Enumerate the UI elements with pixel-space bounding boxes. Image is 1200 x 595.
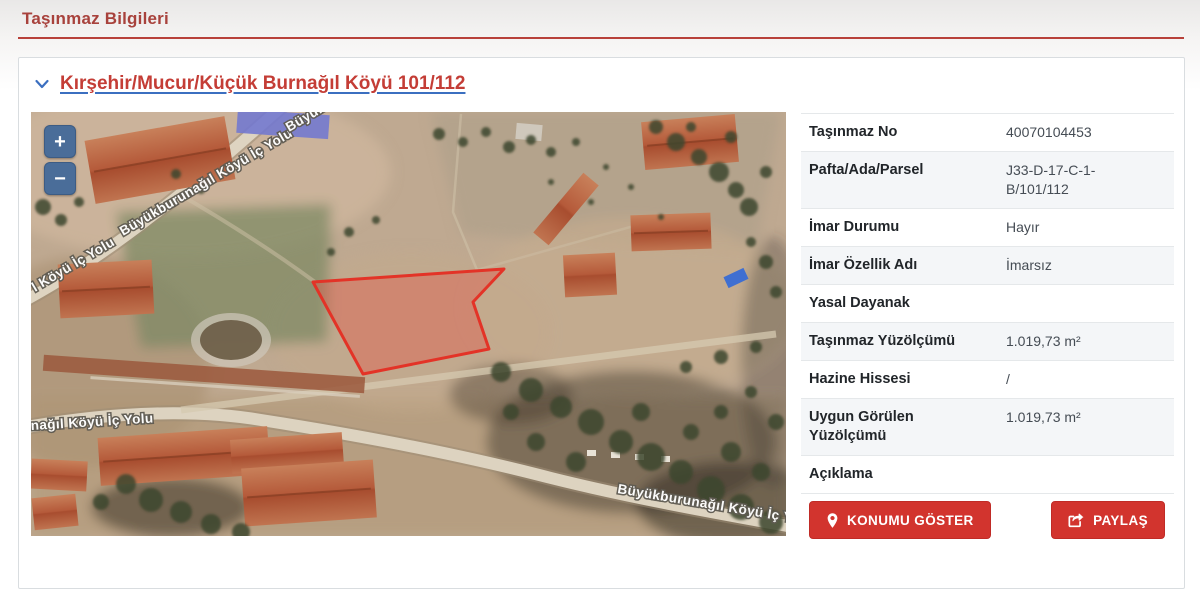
detail-value: 40070104453 bbox=[1006, 123, 1152, 142]
detail-label: Açıklama bbox=[809, 465, 984, 484]
page-header: Taşınmaz Bilgileri bbox=[0, 0, 1200, 29]
table-row: İmar Durumu Hayır bbox=[801, 209, 1174, 247]
page-title: Taşınmaz Bilgileri bbox=[22, 9, 1178, 29]
detail-label: İmar Durumu bbox=[809, 218, 984, 237]
table-row: Hazine Hissesi / bbox=[801, 361, 1174, 399]
detail-value: J33-D-17-C-1-B/101/112 bbox=[1006, 161, 1152, 199]
table-row: Yasal Dayanak bbox=[801, 285, 1174, 323]
detail-value: / bbox=[1006, 370, 1152, 389]
detail-label: Taşınmaz Yüzölçümü bbox=[809, 332, 984, 351]
property-card: Kırşehir/Mucur/Küçük Burnağıl Köyü 101/1… bbox=[18, 57, 1185, 589]
map-zoom-out-button[interactable]: − bbox=[44, 162, 76, 195]
detail-value: 1.019,73 m² bbox=[1006, 408, 1152, 427]
title-divider bbox=[18, 37, 1184, 39]
share-label: PAYLAŞ bbox=[1093, 513, 1148, 528]
map-pin-icon bbox=[826, 513, 839, 528]
map-zoom-control: + − bbox=[44, 125, 76, 199]
detail-value: 1.019,73 m² bbox=[1006, 332, 1152, 351]
card-body: l Köyü İç Yolu Büyükburunağıl Köyü İç Yo… bbox=[19, 109, 1184, 539]
detail-label: Yasal Dayanak bbox=[809, 294, 984, 313]
show-location-label: KONUMU GÖSTER bbox=[847, 513, 974, 528]
satellite-map[interactable]: l Köyü İç Yolu Büyükburunağıl Köyü İç Yo… bbox=[31, 112, 786, 536]
table-row: Taşınmaz No 40070104453 bbox=[801, 114, 1174, 152]
detail-label: Pafta/Ada/Parsel bbox=[809, 161, 984, 180]
detail-value: İmarsız bbox=[1006, 256, 1152, 275]
detail-label: İmar Özellik Adı bbox=[809, 256, 984, 275]
detail-value: Hayır bbox=[1006, 218, 1152, 237]
chevron-down-icon[interactable] bbox=[33, 75, 51, 93]
table-row: Pafta/Ada/Parsel J33-D-17-C-1-B/101/112 bbox=[801, 152, 1174, 209]
actions-row: KONUMU GÖSTER PAYLAŞ bbox=[801, 501, 1174, 539]
details-panel: Taşınmaz No 40070104453 Pafta/Ada/Parsel… bbox=[801, 112, 1174, 539]
card-header: Kırşehir/Mucur/Küçük Burnağıl Köyü 101/1… bbox=[19, 58, 1184, 109]
table-row: Açıklama bbox=[801, 456, 1174, 494]
table-row: Taşınmaz Yüzölçümü 1.019,73 m² bbox=[801, 323, 1174, 361]
satellite-imagery: l Köyü İç Yolu Büyükburunağıl Köyü İç Yo… bbox=[31, 112, 786, 536]
parcel-location-link[interactable]: Kırşehir/Mucur/Küçük Burnağıl Köyü 101/1… bbox=[60, 73, 465, 95]
table-row: İmar Özellik Adı İmarsız bbox=[801, 247, 1174, 285]
share-button[interactable]: PAYLAŞ bbox=[1051, 501, 1165, 539]
show-location-button[interactable]: KONUMU GÖSTER bbox=[809, 501, 991, 539]
detail-label: Uygun Görülen Yüzölçümü bbox=[809, 408, 984, 446]
map-zoom-in-button[interactable]: + bbox=[44, 125, 76, 158]
details-table: Taşınmaz No 40070104453 Pafta/Ada/Parsel… bbox=[801, 113, 1174, 494]
detail-label: Hazine Hissesi bbox=[809, 370, 984, 389]
detail-label: Taşınmaz No bbox=[809, 123, 984, 142]
share-icon bbox=[1068, 513, 1085, 528]
table-row: Uygun Görülen Yüzölçümü 1.019,73 m² bbox=[801, 399, 1174, 456]
